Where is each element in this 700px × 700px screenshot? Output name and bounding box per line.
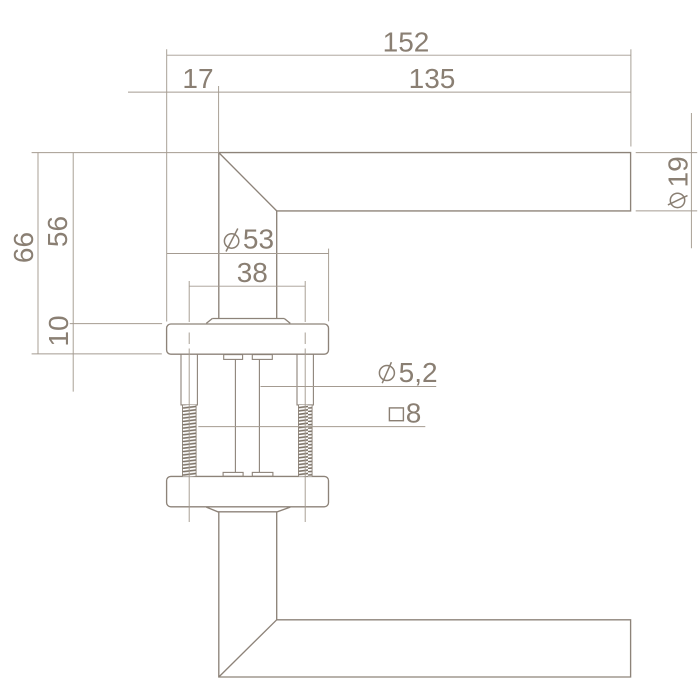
- svg-text:56: 56: [42, 216, 73, 247]
- svg-text:19: 19: [662, 156, 693, 187]
- svg-text:53: 53: [243, 223, 274, 254]
- svg-text:8: 8: [406, 397, 422, 428]
- svg-text:152: 152: [383, 27, 430, 58]
- svg-text:10: 10: [43, 315, 74, 346]
- svg-text:135: 135: [409, 63, 456, 94]
- svg-text:5,2: 5,2: [399, 357, 438, 388]
- svg-text:38: 38: [237, 257, 268, 288]
- svg-text:66: 66: [8, 232, 39, 263]
- svg-text:17: 17: [182, 63, 213, 94]
